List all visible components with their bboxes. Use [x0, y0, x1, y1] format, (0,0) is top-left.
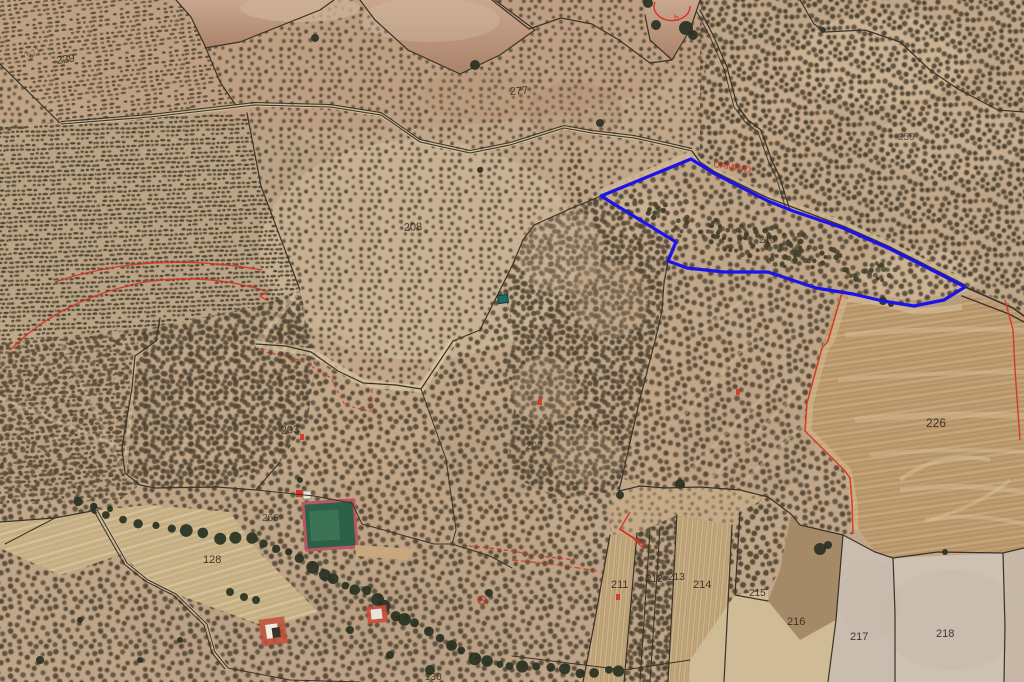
- svg-text:226: 226: [926, 416, 946, 430]
- svg-text:208: 208: [404, 221, 423, 234]
- svg-text:211: 211: [611, 579, 629, 591]
- svg-text:212: 212: [646, 574, 663, 585]
- svg-text:128: 128: [203, 554, 221, 566]
- svg-text:b: b: [674, 13, 679, 23]
- svg-text:216: 216: [787, 616, 805, 628]
- svg-text:213: 213: [668, 572, 685, 583]
- svg-text:259: 259: [898, 132, 915, 143]
- svg-text:210: 210: [759, 235, 776, 246]
- svg-text:203: 203: [280, 424, 299, 437]
- svg-text:266: 266: [262, 513, 279, 524]
- svg-text:214: 214: [693, 579, 711, 591]
- svg-text:130: 130: [425, 672, 442, 682]
- svg-text:277: 277: [509, 85, 528, 98]
- svg-text:209: 209: [526, 440, 544, 452]
- svg-text:218: 218: [936, 628, 954, 640]
- svg-text:217: 217: [850, 631, 868, 643]
- svg-text:229: 229: [56, 53, 76, 67]
- svg-text:215: 215: [749, 588, 766, 599]
